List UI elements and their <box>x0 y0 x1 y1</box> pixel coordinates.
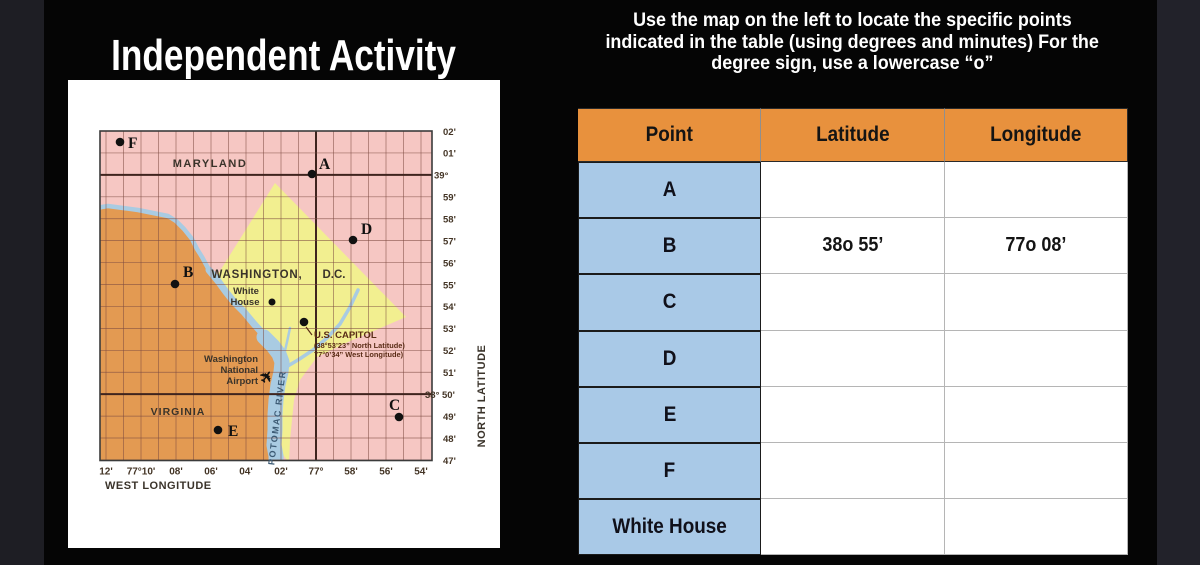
point-E-label: E <box>228 423 238 440</box>
white-house-dot <box>269 299 276 306</box>
point-cell: B <box>578 218 761 274</box>
point-F-label: F <box>128 135 137 152</box>
point-cell: A <box>578 162 761 218</box>
latitude-cell[interactable] <box>761 499 944 555</box>
latitude-cell[interactable] <box>761 274 944 330</box>
y-axis-tick-label: 49' <box>443 412 456 423</box>
y-axis-tick-label: 39° <box>434 171 449 182</box>
latitude-cell[interactable] <box>761 162 944 218</box>
west-longitude-label: WEST LONGITUDE <box>105 480 212 492</box>
point-cell: C <box>578 274 761 330</box>
point-E-dot <box>214 426 223 435</box>
x-axis-tick-label: 06' <box>204 467 218 478</box>
left-edge-stripe <box>0 0 44 565</box>
dc-label: D.C. <box>323 269 346 281</box>
longitude-cell[interactable]: 77o 08’ <box>945 218 1128 274</box>
x-axis-tick-label: 56' <box>379 467 393 478</box>
white-house-label-line2: House <box>230 297 259 308</box>
point-cell: E <box>578 387 761 443</box>
x-axis-tick-label: 54' <box>414 467 428 478</box>
x-axis-tick-label: 02' <box>274 467 288 478</box>
table-row-d: D <box>578 331 1128 387</box>
y-axis-tick-label: 02' <box>443 127 456 138</box>
us-capitol-label: U.S. CAPITOL <box>314 330 377 341</box>
point-D-label: D <box>361 221 372 238</box>
y-axis-tick-label: 51' <box>443 368 456 379</box>
instructions-line-2: indicated in the table (using degrees an… <box>605 32 1098 54</box>
map-image: 12'77°10'08'06'04'02'77°58'56'54'02'01'3… <box>68 80 500 548</box>
airport-label-line2: National <box>221 365 258 376</box>
instructions-line-1: Use the map on the left to locate the sp… <box>633 10 1072 32</box>
header-cell-longitude: Longitude <box>945 108 1128 162</box>
map-panel: 12'77°10'08'06'04'02'77°58'56'54'02'01'3… <box>68 80 500 548</box>
table-header-row: PointLatitudeLongitude <box>578 108 1128 162</box>
longitude-cell[interactable] <box>945 162 1128 218</box>
y-axis-tick-label: 54' <box>443 302 456 313</box>
x-axis-tick-label: 08' <box>169 467 183 478</box>
right-edge-stripe <box>1157 0 1200 565</box>
us-capitol-latitude-note: (38°53’23” North Latitude) <box>314 341 405 350</box>
instructions-line-3: degree sign, use a lowercase “o” <box>711 53 993 75</box>
airport-label-line3: Airport <box>226 376 259 387</box>
points-table: PointLatitudeLongitude AB38o 55’77o 08’C… <box>578 108 1128 555</box>
point-B-dot <box>171 280 180 289</box>
table-row-c: C <box>578 274 1128 330</box>
point-B-label: B <box>183 264 193 281</box>
longitude-cell[interactable] <box>945 443 1128 499</box>
table-row-b: B38o 55’77o 08’ <box>578 218 1128 274</box>
y-axis-tick-label: 52' <box>443 346 456 357</box>
north-latitude-label: NORTH LATITUDE <box>476 345 488 448</box>
x-axis-tick-label: 58' <box>344 467 358 478</box>
y-axis-tick-label: 56' <box>443 258 456 269</box>
points-table-rows: AB38o 55’77o 08’CDEFWhite House <box>578 162 1128 555</box>
us-capitol-dot <box>300 318 309 327</box>
header-cell-point: Point <box>578 108 761 162</box>
table-row-white-house: White House <box>578 499 1128 555</box>
latitude-cell[interactable] <box>761 387 944 443</box>
point-cell: White House <box>578 499 761 555</box>
longitude-cell[interactable] <box>945 499 1128 555</box>
y-axis-tick-label: 38° 50' <box>425 390 455 401</box>
y-axis-tick-label: 57' <box>443 236 456 247</box>
table-row-f: F <box>578 443 1128 499</box>
point-C-label: C <box>389 397 400 414</box>
point-cell: F <box>578 443 761 499</box>
latitude-cell[interactable] <box>761 331 944 387</box>
x-axis-tick-label: 77° <box>308 467 323 478</box>
table-row-a: A <box>578 162 1128 218</box>
y-axis-tick-label: 53' <box>443 324 456 335</box>
y-axis-tick-label: 47' <box>443 456 456 467</box>
point-D-dot <box>349 236 358 245</box>
washington-label: WASHINGTON, <box>211 269 302 281</box>
virginia-label: VIRGINIA <box>151 406 206 418</box>
x-axis-tick-label: 12' <box>99 467 113 478</box>
point-cell: D <box>578 331 761 387</box>
y-axis-tick-label: 55' <box>443 280 456 291</box>
point-A-dot <box>308 170 317 179</box>
x-axis-tick-label: 04' <box>239 467 253 478</box>
point-F-dot <box>116 138 125 147</box>
longitude-cell[interactable] <box>945 274 1128 330</box>
y-axis-tick-label: 01' <box>443 149 456 160</box>
instructions-text: Use the map on the left to locate the sp… <box>576 10 1128 75</box>
latitude-cell[interactable]: 38o 55’ <box>761 218 944 274</box>
longitude-cell[interactable] <box>945 387 1128 443</box>
table-row-e: E <box>578 387 1128 443</box>
white-house-label-line1: White <box>233 286 259 297</box>
y-axis-tick-label: 48' <box>443 434 456 445</box>
maryland-label: MARYLAND <box>173 158 248 170</box>
airport-label-line1: Washington <box>204 354 258 365</box>
header-cell-latitude: Latitude <box>761 108 944 162</box>
y-axis-tick-label: 58' <box>443 215 456 226</box>
y-axis-tick-label: 59' <box>443 193 456 204</box>
latitude-cell[interactable] <box>761 443 944 499</box>
longitude-cell[interactable] <box>945 331 1128 387</box>
us-capitol-longitude-note: 77°0’34” West Longitude) <box>314 350 404 359</box>
page-title: Independent Activity <box>64 31 504 81</box>
x-axis-tick-label: 77°10' <box>127 467 156 478</box>
point-A-label: A <box>319 156 331 173</box>
